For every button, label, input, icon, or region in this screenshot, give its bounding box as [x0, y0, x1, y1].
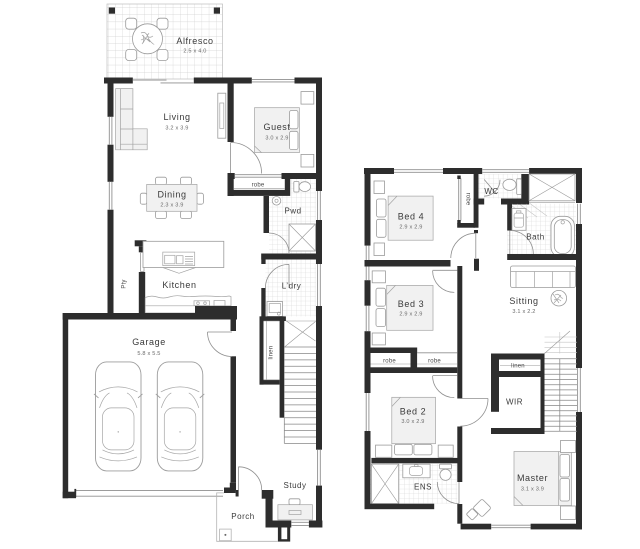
- svg-text:3.0 x 2.9: 3.0 x 2.9: [401, 419, 424, 425]
- svg-text:linen: linen: [511, 364, 525, 370]
- svg-text:Guest: Guest: [263, 122, 290, 132]
- svg-text:5.8 x 5.5: 5.8 x 5.5: [137, 351, 160, 357]
- svg-text:3.2 x 3.9: 3.2 x 3.9: [165, 126, 188, 132]
- svg-text:Master: Master: [517, 473, 548, 483]
- svg-text:Bed 4: Bed 4: [398, 212, 425, 222]
- svg-text:3.1 x 3.9: 3.1 x 3.9: [521, 487, 544, 493]
- svg-text:Bath: Bath: [526, 232, 544, 241]
- svg-text:WIR: WIR: [506, 398, 523, 407]
- svg-text:Dining: Dining: [157, 190, 186, 200]
- svg-text:Alfresco: Alfresco: [176, 36, 213, 46]
- svg-text:robe: robe: [428, 359, 441, 365]
- svg-text:Bed 3: Bed 3: [398, 299, 425, 309]
- svg-text:2.9 x 2.9: 2.9 x 2.9: [399, 312, 422, 318]
- svg-text:2.3 x 3.9: 2.3 x 3.9: [160, 203, 183, 209]
- svg-text:2.5 x 4.0: 2.5 x 4.0: [183, 49, 206, 55]
- svg-text:robe: robe: [465, 193, 471, 206]
- svg-text:Pwd: Pwd: [284, 207, 301, 216]
- svg-text:3.1 x 2.2: 3.1 x 2.2: [512, 309, 535, 315]
- svg-text:2.9 x 2.9: 2.9 x 2.9: [399, 225, 422, 231]
- svg-text:ENS: ENS: [414, 483, 432, 492]
- svg-text:linen: linen: [269, 346, 275, 360]
- svg-text:Study: Study: [284, 481, 307, 490]
- svg-text:Kitchen: Kitchen: [162, 280, 196, 290]
- svg-text:Sitting: Sitting: [509, 296, 538, 306]
- svg-text:Garage: Garage: [132, 337, 166, 347]
- svg-text:L’dry: L’dry: [282, 282, 301, 291]
- svg-text:3.0 x 2.9: 3.0 x 2.9: [265, 136, 288, 142]
- svg-text:Pty: Pty: [122, 279, 128, 288]
- svg-text:Bed 2: Bed 2: [400, 407, 427, 417]
- svg-text:robe: robe: [383, 359, 396, 365]
- svg-text:Living: Living: [163, 112, 190, 122]
- svg-text:robe: robe: [252, 182, 265, 188]
- svg-text:WC: WC: [484, 187, 498, 196]
- svg-text:Porch: Porch: [231, 512, 254, 521]
